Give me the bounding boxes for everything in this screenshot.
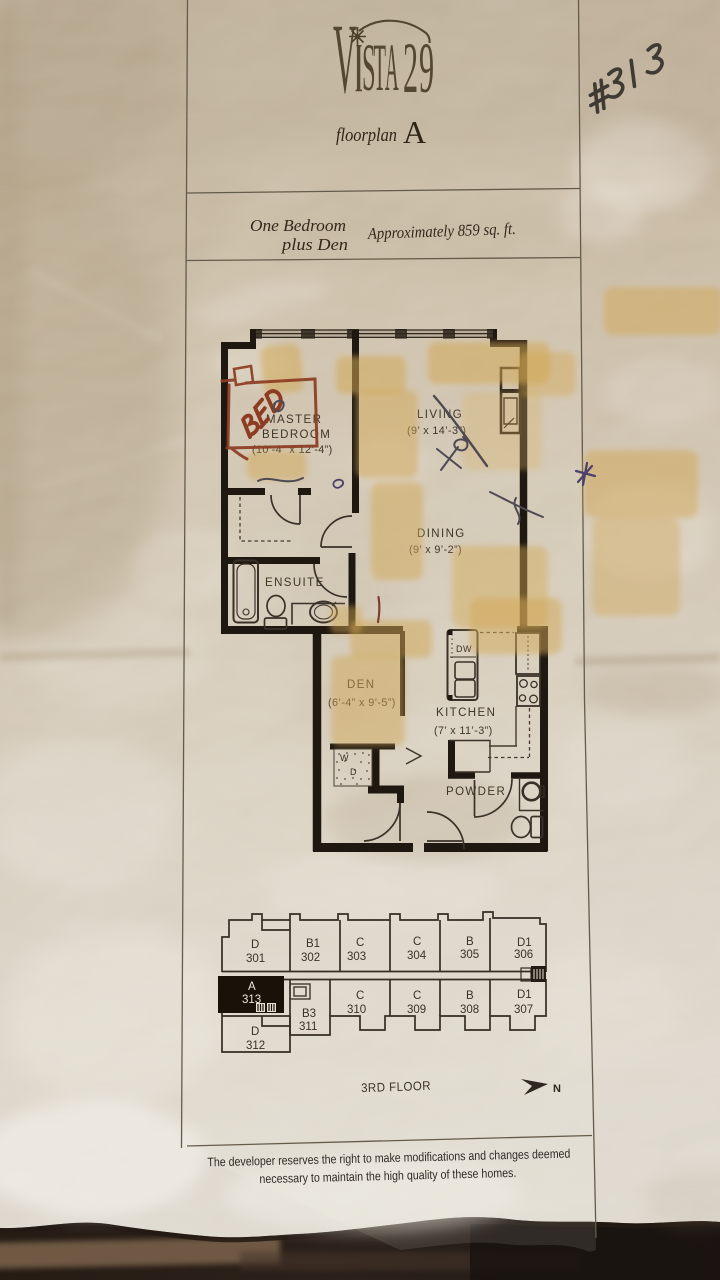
svg-text:BEDROOM: BEDROOM <box>262 429 331 441</box>
svg-text:307: 307 <box>514 1004 533 1016</box>
svg-text:305: 305 <box>460 949 479 961</box>
svg-text:2: 2 <box>403 28 418 108</box>
svg-text:B: B <box>466 990 474 1002</box>
svg-text:310: 310 <box>347 1004 366 1016</box>
svg-text:D1: D1 <box>517 937 532 949</box>
svg-text:KITCHEN: KITCHEN <box>436 707 496 719</box>
svg-text:ENSUITE: ENSUITE <box>265 577 325 589</box>
svg-text:V: V <box>333 5 357 115</box>
svg-text:C: C <box>356 990 364 1002</box>
svg-text:POWDER: POWDER <box>446 786 506 798</box>
svg-text:DW: DW <box>456 644 472 654</box>
svg-text:B: B <box>466 936 474 948</box>
svg-text:313: 313 <box>242 994 261 1006</box>
svg-text:302: 302 <box>301 952 320 964</box>
svg-text:A: A <box>385 30 399 105</box>
svg-text:D: D <box>251 939 259 951</box>
svg-text:A: A <box>248 981 256 993</box>
svg-text:N: N <box>553 1083 561 1095</box>
svg-text:plus Den: plus Den <box>281 235 348 254</box>
svg-text:W: W <box>340 753 349 763</box>
svg-text:floorplan: floorplan <box>336 125 397 146</box>
svg-text:303: 303 <box>347 951 366 963</box>
svg-text:308: 308 <box>460 1004 479 1016</box>
svg-text:304: 304 <box>407 950 427 962</box>
svg-text:306: 306 <box>514 949 533 961</box>
svg-text:3RD FLOOR: 3RD FLOOR <box>361 1079 431 1095</box>
svg-text:D: D <box>251 1026 259 1038</box>
svg-text:312: 312 <box>246 1040 265 1052</box>
svg-text:C: C <box>413 990 421 1002</box>
svg-text:311: 311 <box>299 1021 317 1033</box>
svg-text:C: C <box>413 936 421 948</box>
svg-text:A: A <box>403 114 426 150</box>
svg-text:One Bedroom: One Bedroom <box>250 216 346 235</box>
svg-text:9: 9 <box>419 28 434 108</box>
svg-text:(7’ x 11’-3”): (7’ x 11’-3”) <box>434 725 493 737</box>
svg-text:DINING: DINING <box>417 528 466 540</box>
svg-text:LIVING: LIVING <box>417 409 463 421</box>
svg-text:D1: D1 <box>517 989 532 1001</box>
svg-text:D: D <box>350 767 357 777</box>
svg-text:B3: B3 <box>302 1008 316 1020</box>
svg-text:309: 309 <box>407 1004 426 1016</box>
svg-text:C: C <box>356 937 364 949</box>
svg-text:301: 301 <box>246 953 265 965</box>
svg-text:MASTER: MASTER <box>266 414 322 426</box>
svg-text:B1: B1 <box>306 938 320 950</box>
svg-text:T: T <box>374 29 386 105</box>
